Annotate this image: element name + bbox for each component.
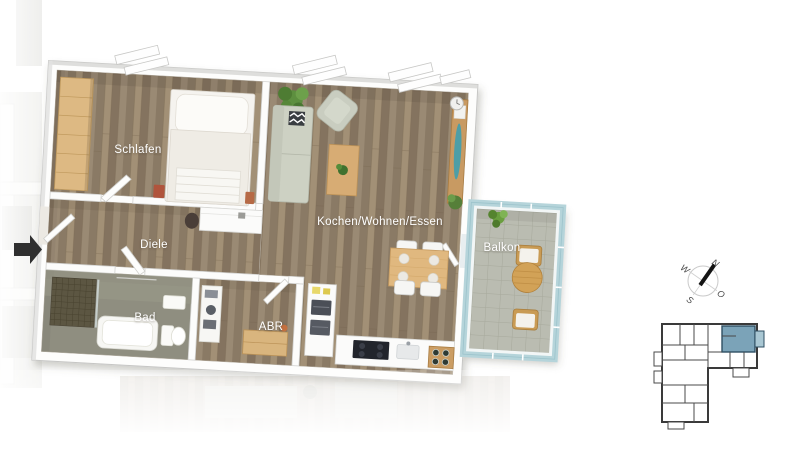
shelf-item — [323, 288, 330, 294]
cooktop — [352, 340, 389, 360]
wine-bottle — [442, 350, 449, 357]
shelf-box — [203, 320, 216, 330]
bed-pillow — [175, 94, 249, 136]
plate — [429, 255, 440, 266]
dining-chair — [394, 280, 415, 295]
room-label-kochen-wohnen-essen: Kochen/Wohnen/Essen — [317, 216, 443, 228]
room-label-abr: ABR — [259, 321, 284, 333]
bedside-box-orange — [245, 192, 255, 204]
plate — [399, 253, 410, 264]
bedside-box-red — [153, 185, 165, 199]
zigzag-pillow — [288, 111, 305, 126]
floorplan-page: N O S W Schlafen Diele Bad ABR Kochen/Wo… — [0, 0, 800, 450]
washbasin — [163, 295, 186, 309]
wine-bottle — [432, 358, 439, 365]
keyplan-balcony-tab — [654, 352, 662, 366]
shelf-item — [312, 287, 320, 294]
apartment-plan — [32, 39, 574, 389]
wine-rack — [428, 346, 454, 368]
shelf-box — [205, 290, 218, 299]
room-label-diele: Diele — [140, 239, 168, 251]
compass-label-s: S — [685, 294, 696, 306]
compass-label-w: W — [679, 262, 693, 276]
shower-mosaic — [50, 277, 97, 327]
window-sash — [440, 70, 471, 85]
hall-sideboard — [199, 207, 262, 233]
keyplan-balcony-tab — [733, 368, 749, 377]
wall-diele-abr — [289, 276, 304, 284]
room-label-bad: Bad — [134, 312, 155, 324]
sink — [397, 344, 420, 359]
chair-cushion — [515, 313, 535, 328]
wine-bottle — [442, 359, 449, 366]
building-key-plan — [654, 324, 764, 429]
bottom-fade-overlay — [0, 370, 620, 450]
room-label-schlafen: Schlafen — [114, 144, 161, 156]
keyplan-highlighted-balcony — [755, 331, 764, 347]
keyplan-entrance-tab — [668, 422, 684, 429]
chair-cushion — [519, 248, 539, 263]
room-label-balkon: Balkon — [484, 242, 521, 254]
wine-bottle — [433, 349, 440, 356]
dining-chair — [420, 282, 441, 297]
hall-decor — [238, 212, 245, 218]
keyplan-highlighted-unit — [722, 326, 755, 352]
keyplan-balcony-tab — [654, 371, 662, 383]
compass-label-o: O — [715, 288, 726, 300]
compass-rose-icon: N O S W — [679, 255, 729, 306]
